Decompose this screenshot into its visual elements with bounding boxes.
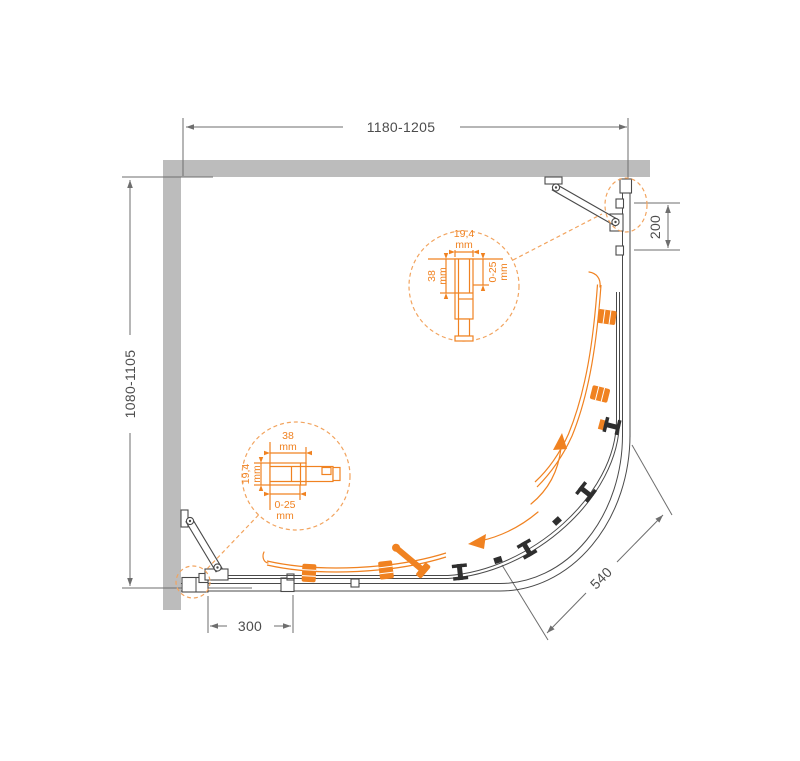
extension-line (502, 565, 548, 640)
dimension-bottom-segment: 300 (208, 595, 293, 634)
detail-callout-bottom: 38 mm 19,4 mm 0-25 mm (240, 422, 350, 530)
roller (575, 481, 597, 503)
fixed-glass-panels (181, 179, 632, 592)
track-clamp (552, 516, 562, 526)
brace-pivot-pin (216, 566, 218, 568)
door-roller-carrier (378, 560, 394, 580)
door-roller-carrier (302, 564, 317, 583)
panel-clamp (351, 579, 359, 587)
brace-pivot-pin (614, 221, 616, 223)
door-end-hook (589, 272, 600, 287)
sliding-door-right (535, 272, 617, 487)
profile-insert (322, 468, 331, 475)
slide-arrow-down (480, 512, 538, 541)
leader-line-bottom (205, 515, 259, 571)
roller (517, 538, 538, 559)
brace-pivot-pin (555, 186, 557, 188)
slide-arrow-down-head (468, 534, 486, 549)
detail-adjust-unit: mm (276, 510, 294, 522)
dimension-label-depth: 1080-1105 (122, 350, 138, 419)
brace-bar (552, 184, 618, 226)
profile-base (455, 336, 473, 341)
curved-panel-outer-line (500, 435, 630, 591)
detail-adjust-unit: mm (498, 263, 510, 281)
brace-pivot-pin (189, 520, 191, 522)
track-line (212, 292, 617, 576)
brace-wall-pad (545, 177, 562, 184)
dimension-line (617, 515, 663, 562)
detail-leaders (176, 178, 647, 598)
extension-line (632, 445, 672, 515)
panel-joint-tab (287, 574, 294, 580)
drawing-canvas: 1180-1205 1080-1105 200 300 540 (0, 0, 800, 761)
door-roller-carrier (590, 385, 611, 403)
door-roller-carrier (597, 309, 617, 325)
profile-body (455, 259, 473, 319)
carrier-body (590, 385, 611, 403)
wall-left (163, 160, 181, 610)
roller (452, 563, 469, 580)
detail-callout-top: 19,4 mm 38 mm 0-25 mm (409, 228, 519, 341)
door-glass-edge (537, 285, 601, 487)
panel-joint (616, 246, 624, 255)
dimension-right-segment: 200 (634, 203, 680, 250)
wall-top (163, 160, 650, 177)
detail-width-unit: mm (455, 239, 473, 251)
right-panel-top-cap (620, 179, 632, 193)
carrier-body (597, 309, 617, 325)
dimension-line (547, 593, 586, 633)
dimension-label-200: 200 (647, 215, 663, 239)
slide-direction-arrows (468, 433, 567, 549)
detail-depth-unit: mm (437, 267, 449, 285)
shower-enclosure-drawing: 1180-1205 1080-1105 200 300 540 (0, 0, 800, 761)
leader-line-top (513, 214, 602, 260)
dimension-label-width: 1180-1205 (367, 119, 436, 135)
panel-joint (616, 199, 624, 208)
profile-end-cap (333, 468, 340, 481)
track-line (212, 292, 620, 579)
detail-width-unit: mm (279, 441, 297, 453)
profile-foot (459, 319, 470, 336)
carrier-body (302, 564, 317, 583)
door-track (212, 292, 620, 579)
carrier-body (378, 560, 394, 580)
clamp-body (552, 516, 562, 526)
detail-depth-unit: mm (251, 465, 263, 483)
dimension-label-300: 300 (238, 618, 262, 634)
dimension-label-540: 540 (587, 564, 615, 592)
wall-brace-bottom (181, 510, 228, 580)
